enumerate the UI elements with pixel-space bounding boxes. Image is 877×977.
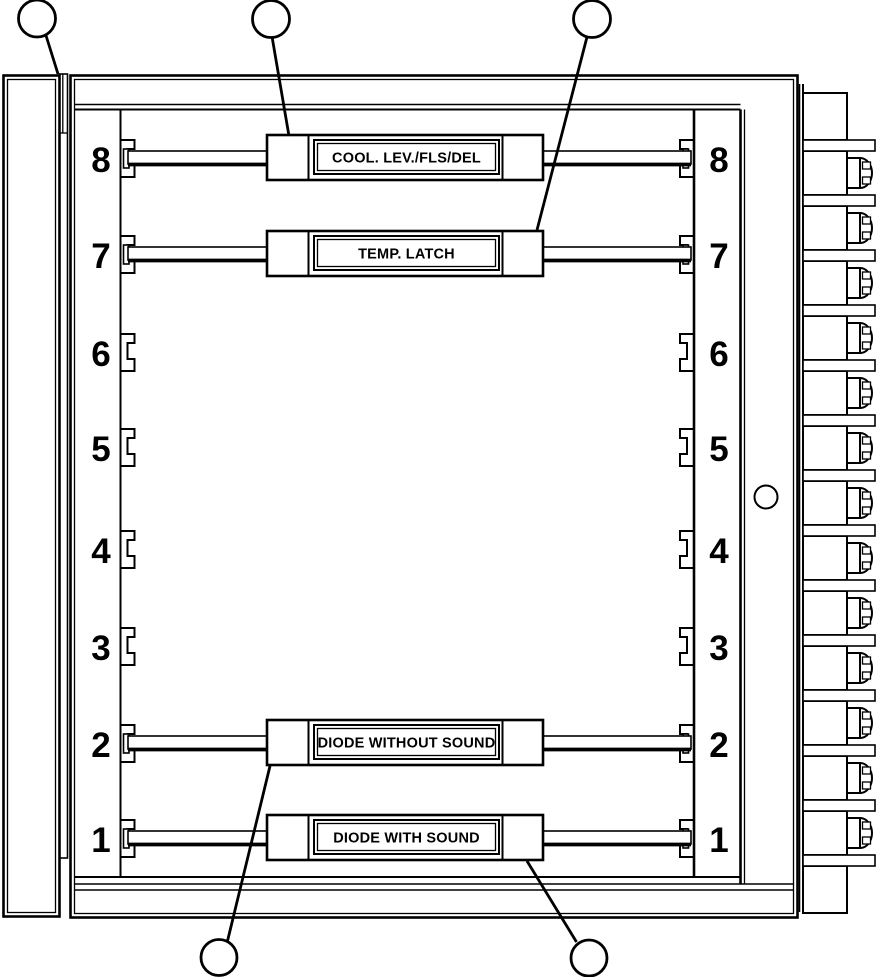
mounting-tab (803, 195, 875, 206)
connector-panel (800, 84, 876, 913)
mounting-tab (803, 690, 875, 701)
frame-outline (71, 76, 798, 918)
connector-lug (847, 598, 872, 628)
mounting-tab (803, 580, 875, 591)
card-label: COOL. LEV./FLS/DEL (332, 151, 481, 167)
mounting-tab (803, 800, 875, 811)
leader-line-top-left (46, 36, 58, 75)
card-slot-7: TEMP. LATCH (124, 231, 692, 276)
leader-line-top-mid (272, 37, 289, 137)
card-track-left (128, 831, 267, 844)
mounting-tab (803, 635, 875, 646)
card-slot-2: DIODE WITHOUT SOUND (124, 720, 692, 765)
callout-balloon-bottom-right (571, 940, 607, 976)
card-label: TEMP. LATCH (358, 247, 455, 263)
card-track-left (128, 151, 267, 164)
leader-line-top-right (537, 37, 587, 230)
mounting-hole (755, 486, 778, 509)
connector-lug (847, 653, 872, 683)
slot-number-left-2: 2 (91, 726, 110, 765)
card-guide-right (680, 334, 694, 371)
card-track-right (543, 831, 691, 844)
card-guide-left (121, 628, 135, 665)
connector-block (803, 646, 847, 690)
connector-lug (847, 763, 872, 793)
left-panel-outline (4, 76, 60, 917)
mounting-tab (803, 470, 875, 481)
slot-number-right-5: 5 (709, 430, 728, 469)
diagram-svg: 8 7 6 5 4 3 2 1 8 7 6 5 4 3 2 1 COOL. LE… (0, 0, 877, 977)
connector-block (803, 591, 847, 635)
connector-block (803, 536, 847, 580)
connector-block (803, 316, 847, 360)
mounting-tab (803, 360, 875, 371)
slot-number-right-3: 3 (709, 629, 728, 668)
left-panel-inner-line (8, 80, 56, 913)
callout-balloon-bottom-left (201, 940, 237, 976)
mounting-tab (803, 525, 875, 536)
connector-block (803, 261, 847, 305)
card-guide-right (680, 628, 694, 665)
rack-elevation-diagram: 8 7 6 5 4 3 2 1 8 7 6 5 4 3 2 1 COOL. LE… (0, 0, 877, 977)
connector-lug (847, 708, 872, 738)
card-track-right (543, 736, 691, 749)
connector-block (803, 371, 847, 415)
slot-number-left-6: 6 (91, 335, 110, 374)
connector-lug (847, 433, 872, 463)
slot-number-right-6: 6 (709, 335, 728, 374)
card-slot-8: COOL. LEV./FLS/DEL (124, 135, 692, 180)
connector-block (803, 756, 847, 800)
callout-balloon-top-left (19, 0, 56, 37)
slot-number-right-8: 8 (709, 141, 728, 180)
connector-block (803, 811, 847, 855)
connector-block (803, 206, 847, 250)
card-track-right (543, 247, 691, 260)
mounting-tab (803, 250, 875, 261)
callout-balloon-top-right (574, 1, 611, 38)
panel-top-block (803, 93, 847, 140)
connector-block (803, 701, 847, 745)
mounting-tab (803, 140, 875, 151)
slot-number-left-3: 3 (91, 629, 110, 668)
slot-number-left-5: 5 (91, 430, 110, 469)
slot-number-right-2: 2 (709, 726, 728, 765)
slot-number-left-1: 1 (91, 821, 110, 860)
connector-lug (847, 268, 872, 298)
mounting-tab (803, 855, 875, 866)
slot-number-right-4: 4 (709, 532, 729, 571)
card-track-right (543, 151, 691, 164)
connector-lug (847, 323, 872, 353)
mounting-tab (803, 305, 875, 316)
card-guide-left (121, 531, 135, 568)
connector-lug (847, 213, 872, 243)
card-guide-right (680, 429, 694, 466)
connector-lug (847, 158, 872, 188)
connector-block (803, 151, 847, 195)
mounting-tab (803, 745, 875, 756)
slot-number-left-7: 7 (91, 237, 110, 276)
slot-number-right-7: 7 (709, 237, 728, 276)
mounting-tab (803, 415, 875, 426)
card-slot-1: DIODE WITH SOUND (124, 815, 692, 860)
card-guide-left (121, 334, 135, 371)
card-rack-frame (71, 76, 798, 918)
connector-lug (847, 488, 872, 518)
connector-lug (847, 543, 872, 573)
slot-number-left-4: 4 (91, 532, 111, 571)
callout-balloon-top-mid (253, 1, 290, 38)
card-label: DIODE WITH SOUND (333, 831, 480, 847)
card-guide-right (680, 531, 694, 568)
panel-bottom-block (803, 866, 847, 913)
card-label: DIODE WITHOUT SOUND (318, 736, 496, 752)
card-track-left (128, 736, 267, 749)
connector-block (803, 481, 847, 525)
connector-lug (847, 818, 872, 848)
leader-line-bottom-left (228, 766, 271, 941)
left-side-panel (4, 76, 60, 917)
slot-number-right-1: 1 (709, 821, 728, 860)
leader-line-bottom-right (527, 861, 577, 942)
slot-number-left-8: 8 (91, 141, 110, 180)
card-guide-left (121, 429, 135, 466)
frame-inner-line (75, 80, 794, 914)
card-track-left (128, 247, 267, 260)
connector-lug (847, 378, 872, 408)
connector-block (803, 426, 847, 470)
